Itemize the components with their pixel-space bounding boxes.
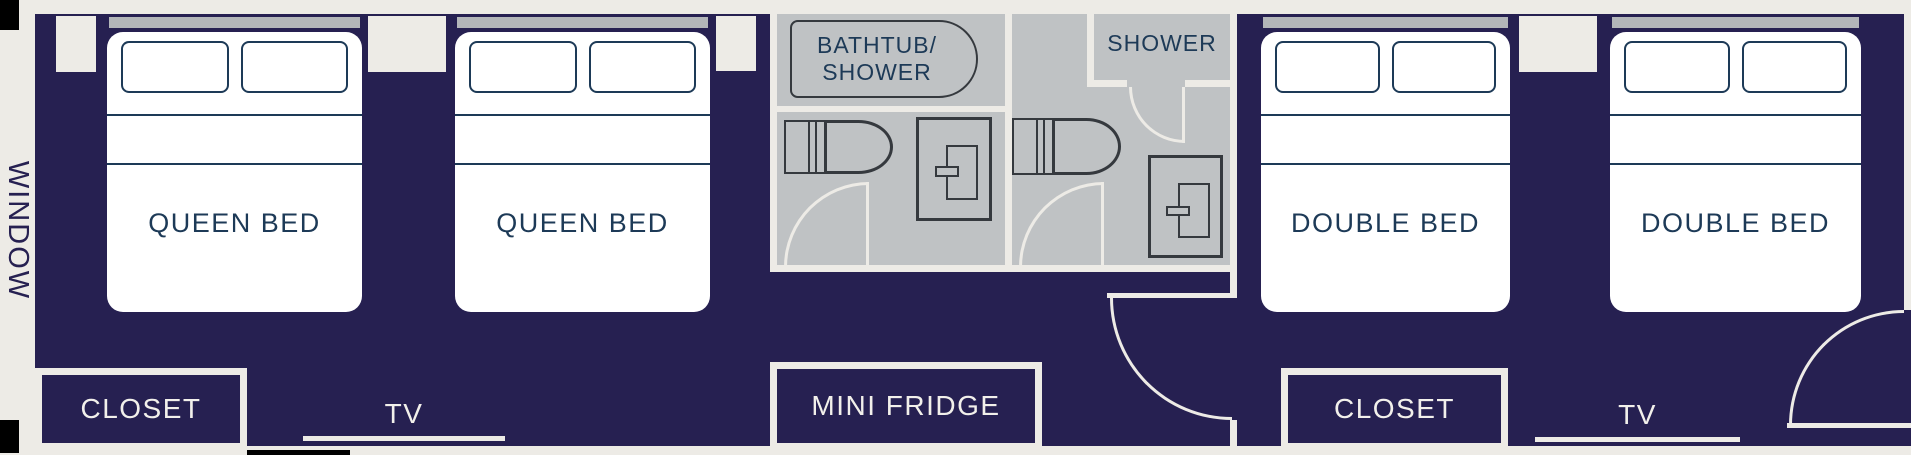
bathroom-left-wall <box>770 14 777 272</box>
pillow <box>589 41 697 93</box>
hall-wall-segment <box>1230 420 1237 447</box>
double-bed-1: DOUBLE BED <box>1261 32 1510 312</box>
bathtub-alcove-wall <box>777 106 1005 112</box>
bed-label: DOUBLE BED <box>1261 208 1510 239</box>
double-bed-2: DOUBLE BED <box>1610 32 1861 312</box>
toilet-tank-line <box>1043 118 1045 175</box>
sheet-fold <box>455 114 710 165</box>
headboard-strip <box>457 17 708 28</box>
shower-stall-wall <box>1087 14 1094 87</box>
bathtub-label-line1: BATHTUB/ <box>817 32 937 59</box>
sheet-fold <box>107 114 362 165</box>
nightstand <box>716 16 756 71</box>
toilet-bowl <box>824 120 893 174</box>
headboard-strip <box>1612 17 1859 28</box>
closet-label: CLOSET <box>80 393 201 425</box>
mini-fridge: MINI FRIDGE <box>770 362 1042 450</box>
bed-label: QUEEN BED <box>107 208 362 239</box>
right-wall <box>1904 0 1911 310</box>
shower-stall-wall <box>1087 80 1127 87</box>
nightstand <box>1519 16 1597 72</box>
bathroom-divider-wall <box>1005 14 1012 272</box>
queen-bed-1: QUEEN BED <box>107 32 362 312</box>
nightstand <box>368 16 446 72</box>
tv-label-left: TV <box>303 398 505 430</box>
window-wall: WINDOW <box>0 14 35 446</box>
closet-left: CLOSET <box>35 368 247 450</box>
hall-door-arc <box>1110 298 1232 420</box>
pillow <box>469 41 577 93</box>
pillow <box>241 41 349 93</box>
toilet-tank <box>1012 118 1054 175</box>
toilet-tank <box>784 120 826 174</box>
tv-label-right: TV <box>1535 399 1740 431</box>
headboard-strip <box>109 17 360 28</box>
black-mark-bottom-strip <box>247 450 350 455</box>
pillow <box>1742 41 1848 93</box>
closet-right: CLOSET <box>1281 368 1508 450</box>
bed-label: QUEEN BED <box>455 208 710 239</box>
toilet-bowl <box>1052 118 1121 175</box>
bathroom-right-wall <box>1230 14 1237 272</box>
window-label: WINDOW <box>1 160 34 299</box>
shower-label: SHOWER <box>1094 30 1230 57</box>
tv-line-right <box>1535 437 1740 442</box>
sheet-fold <box>1610 114 1861 165</box>
bathtub-label-line2: SHOWER <box>822 59 932 86</box>
sheet-fold <box>1261 114 1510 165</box>
toilet <box>1012 118 1121 175</box>
bathtub: BATHTUB/ SHOWER <box>790 20 978 98</box>
toilet <box>784 120 894 174</box>
queen-bed-2: QUEEN BED <box>455 32 710 312</box>
top-wall <box>0 0 1911 14</box>
pillow <box>1392 41 1497 93</box>
sink-vanity <box>1148 155 1223 258</box>
sink-tap <box>1166 206 1190 216</box>
toilet-tank-line <box>1036 118 1038 175</box>
toilet-tank-line <box>808 120 810 174</box>
shower-stall-wall <box>1185 80 1230 87</box>
headboard-strip <box>1263 17 1508 28</box>
sink-tap <box>935 166 959 177</box>
black-mark-bottom-left <box>0 420 19 453</box>
hotel-room-floor-plan: WINDOW QUEEN BED QUEEN BED BATHTUB/ SHOW… <box>0 0 1911 455</box>
mini-fridge-label: MINI FRIDGE <box>811 390 1000 422</box>
nightstand <box>56 16 96 72</box>
entrance-door-arc <box>1789 310 1904 425</box>
pillow <box>1624 41 1730 93</box>
pillow <box>121 41 229 93</box>
closet-label: CLOSET <box>1334 393 1455 425</box>
bed-label: DOUBLE BED <box>1610 208 1861 239</box>
tv-line-left <box>303 436 505 441</box>
sink-vanity <box>916 117 992 221</box>
pillow <box>1275 41 1380 93</box>
black-mark-top-left <box>0 0 19 30</box>
toilet-tank-line <box>815 120 817 174</box>
